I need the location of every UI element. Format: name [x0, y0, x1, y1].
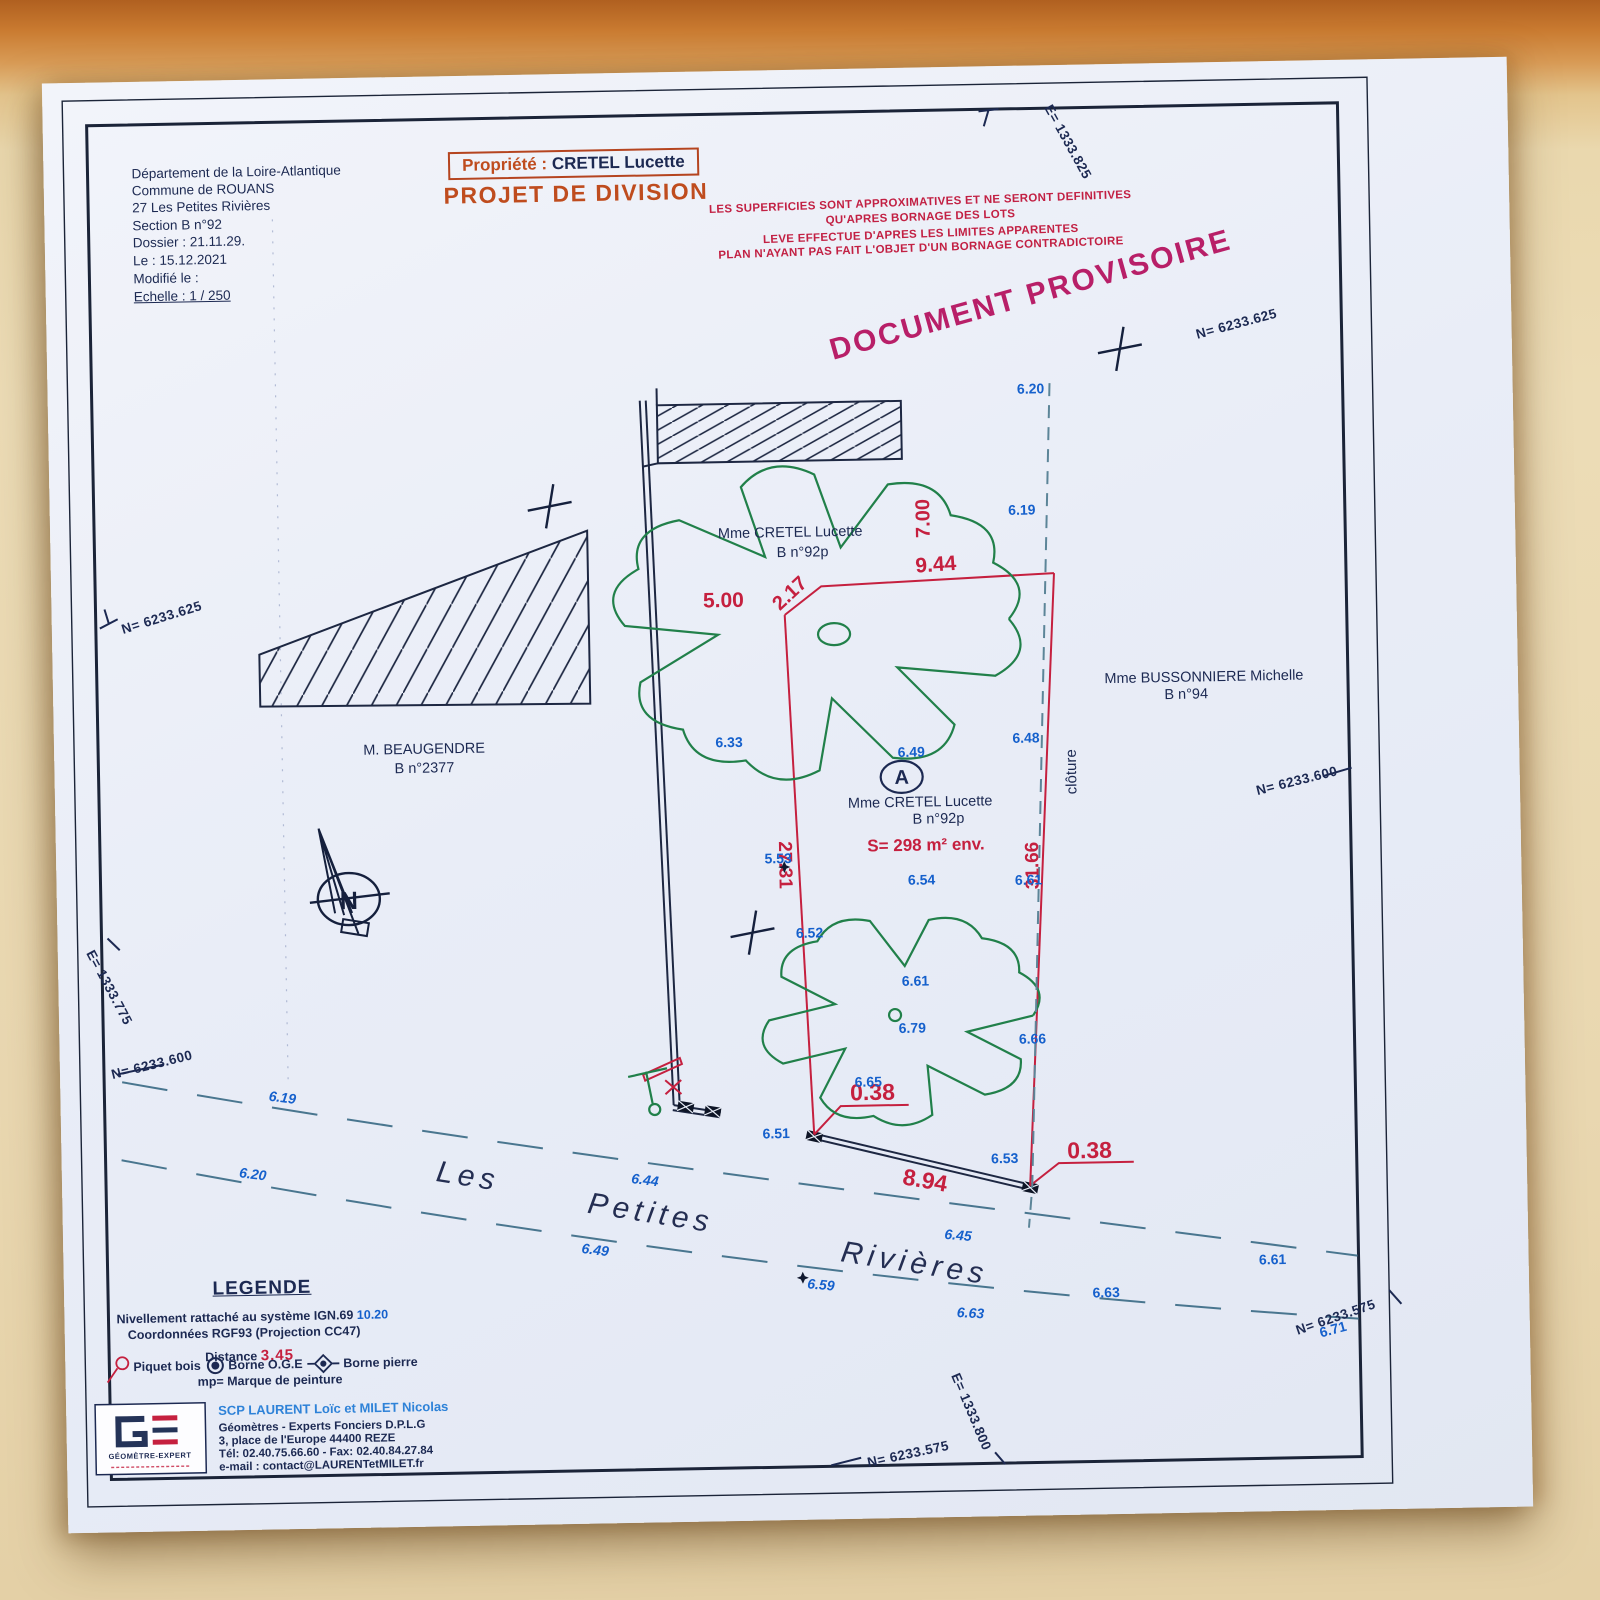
- page-title: PROJET DE DIVISION: [443, 178, 708, 210]
- dimension-label-700: 7.00: [912, 499, 936, 538]
- dimension-label-944: 9.44: [915, 552, 957, 579]
- building-hatched-north: [642, 384, 902, 467]
- header-line-commune: Commune de ROUANS: [132, 181, 275, 199]
- photo-of-survey-plan: { "header": { "lines": [ "Département de…: [0, 0, 1600, 1600]
- legend-title: LEGENDE: [212, 1277, 311, 1301]
- parcel-owner-cretel-top: Mme CRETEL Lucette: [718, 524, 863, 543]
- header-line-date: Le : 15.12.2021: [133, 252, 227, 269]
- parcel-ref-bussonniere: B n°94: [1164, 686, 1208, 703]
- elevation-label: 5.53: [764, 850, 792, 866]
- firm-logo: [95, 1403, 206, 1475]
- elevation-label: 6.51: [762, 1125, 790, 1141]
- elevation-label: 6.61: [1015, 871, 1043, 887]
- elevation-label: 6.63: [956, 1304, 984, 1321]
- elevation-label: 6.54: [908, 871, 936, 887]
- elevation-label: 6.33: [715, 734, 743, 750]
- elevation-label: 6.65: [854, 1073, 882, 1089]
- tree-trunk-1: [818, 623, 850, 646]
- elevation-label: 6.49: [897, 743, 925, 759]
- header-line-dossier: Dossier : 21.11.29.: [133, 233, 246, 250]
- legend-mp-line: mp= Marque de peinture: [198, 1372, 343, 1389]
- borne-pierre-icon: [307, 1355, 339, 1373]
- elevation-label: 6.59: [807, 1275, 836, 1293]
- property-box: Propriété : CRETEL Lucette: [448, 148, 699, 181]
- header-line-modifie: Modifié le :: [133, 270, 199, 286]
- header-line-section: Section B n°92: [132, 217, 222, 234]
- dimension-label-500: 5.00: [703, 589, 744, 614]
- coordinate-ticks: [91, 102, 1405, 1480]
- legend-piquet-label: Piquet bois: [133, 1359, 201, 1374]
- elevation-label: 6.63: [1092, 1284, 1120, 1300]
- tree-canopy-1: [611, 462, 1023, 783]
- header-line-echelle: Echelle : 1 / 250: [134, 288, 231, 305]
- parcel-ref-cretel-top: B n°92p: [777, 544, 829, 561]
- elevation-label: 6.20: [1017, 380, 1045, 396]
- lot-a-circle: A: [880, 761, 923, 794]
- elevation-label: 6.19: [1008, 501, 1036, 517]
- building-hatched-beaugendre: [257, 531, 590, 710]
- elevation-label: 6.79: [899, 1020, 927, 1036]
- elevation-label: 6.66: [1019, 1030, 1047, 1046]
- header-line-adresse: 27 Les Petites Rivières: [132, 198, 270, 216]
- parcel-ref-cretel-lot: B n°92p: [912, 811, 964, 828]
- elevation-label: 6.44: [631, 1170, 660, 1189]
- lot-a-letter: A: [894, 767, 909, 789]
- parcel-owner-cretel-lot: Mme CRETEL Lucette: [848, 793, 993, 812]
- compass-n-letter: N: [340, 887, 359, 915]
- firm-logo-text: GÉOMÈTRE-EXPERT: [108, 1451, 191, 1462]
- legend-nivellement-value: 10.20: [357, 1307, 389, 1322]
- elevation-label: 6.48: [1012, 729, 1040, 745]
- piquet-circle: [649, 1104, 660, 1115]
- elevation-label: 6.20: [238, 1164, 267, 1183]
- street-dashed-lines: [120, 1060, 1359, 1342]
- dimension-label-038-right: 0.38: [1067, 1137, 1112, 1165]
- legend-pierre-label: Borne pierre: [343, 1355, 418, 1370]
- paper-sheet: A N: [42, 57, 1533, 1534]
- borne-markers: [677, 1094, 1039, 1201]
- fence-label: clôture: [1063, 749, 1081, 794]
- parcel-area-label: S= 298 m² env.: [867, 834, 985, 856]
- parcel-ref-beaugendre: B n°2377: [394, 760, 454, 777]
- elevation-label: 6.52: [796, 924, 824, 940]
- north-compass-icon: N: [309, 827, 391, 937]
- property-box-owner: CRETEL Lucette: [552, 152, 685, 173]
- elevation-label: 6.61: [902, 972, 930, 988]
- elevation-label: 6.53: [991, 1150, 1019, 1166]
- property-box-label: Propriété :: [462, 154, 547, 175]
- legend-oge-label: Borne O.G.E: [228, 1357, 303, 1372]
- elevation-label: 6.19: [268, 1088, 297, 1107]
- elevation-label: 6.61: [1259, 1251, 1287, 1267]
- parcel-owner-beaugendre: M. BEAUGENDRE: [363, 741, 485, 759]
- elevation-label: 6.49: [581, 1240, 610, 1259]
- elevation-label: 6.45: [944, 1226, 973, 1244]
